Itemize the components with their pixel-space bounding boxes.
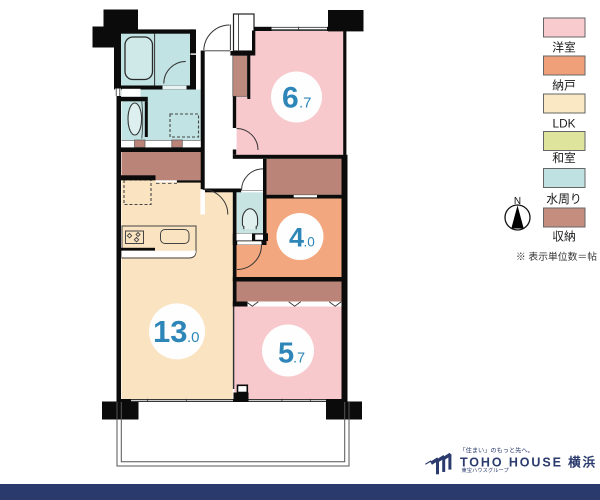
svg-text:洋室: 洋室 [552,41,576,55]
svg-text:4: 4 [289,223,304,253]
svg-text:水周り: 水周り [546,192,581,206]
svg-text:※ 表示単位数＝帖: ※ 表示単位数＝帖 [516,250,597,263]
svg-text:6: 6 [282,82,299,115]
svg-text:収納: 収納 [552,230,576,244]
svg-text:「住まい」のもっと先へ。: 「住まい」のもっと先へ。 [460,447,534,455]
svg-text:和室: 和室 [552,151,576,165]
svg-text:LDK: LDK [553,117,576,131]
svg-text:.0: .0 [304,235,315,250]
svg-text:.7: .7 [293,351,305,367]
svg-text:N: N [514,196,521,207]
svg-text:納戸: 納戸 [552,79,576,93]
svg-text:.0: .0 [187,329,200,346]
svg-text:東宝ハウスグループ: 東宝ハウスグループ [462,466,510,474]
svg-text:13: 13 [153,314,187,349]
svg-text:.7: .7 [299,95,312,112]
svg-text:5: 5 [278,338,294,370]
